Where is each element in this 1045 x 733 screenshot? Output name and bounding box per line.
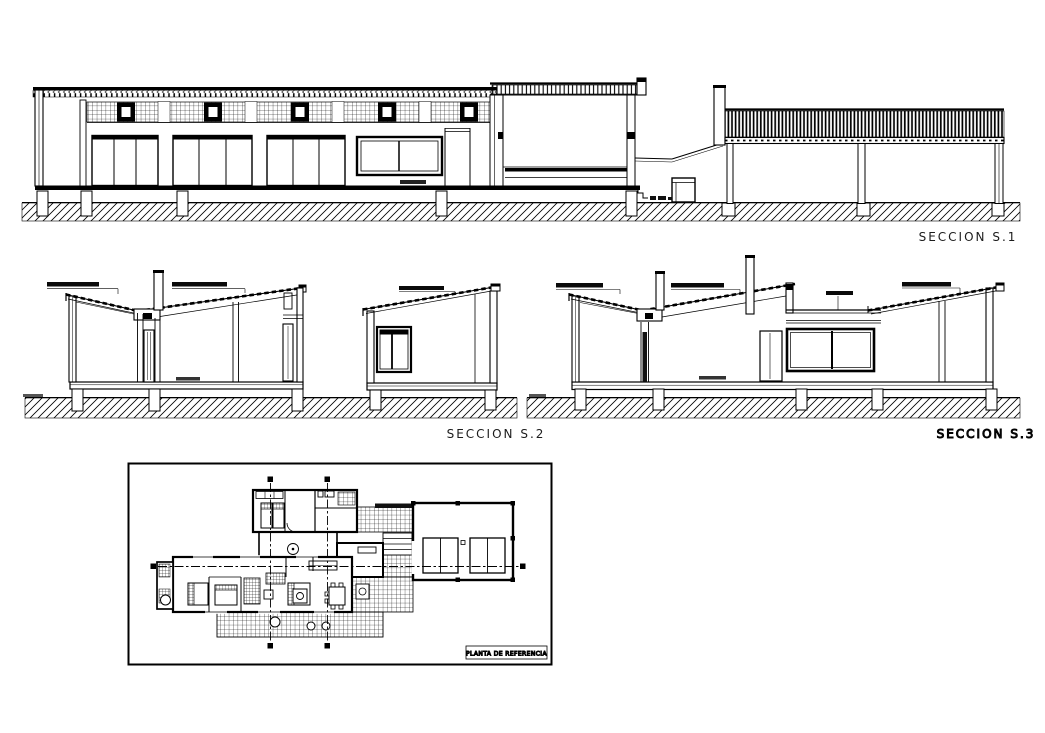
s1-left-wall	[35, 90, 86, 186]
s1-clerestory-band	[87, 102, 490, 123]
s3-ground-annotation-blob	[529, 394, 546, 397]
s2-piece2-window	[377, 327, 411, 372]
plan-steps	[383, 533, 412, 555]
plan-title-box: PLANTA DE REFERENCIA	[466, 646, 547, 659]
seccion-s3-label: SECCION S.3	[937, 427, 1036, 441]
s1-carport	[725, 110, 1004, 204]
s3-ground-hatch	[527, 398, 1020, 419]
seccion-s2-label: SECCION S.2	[447, 427, 546, 441]
s2-piece1	[47, 270, 306, 411]
drawing-canvas: SECCION S.1	[0, 0, 1045, 733]
s1-carport-columns	[727, 144, 1003, 204]
seccion-s1-label: SECCION S.1	[919, 230, 1018, 244]
s1-step-annotation-blobs	[650, 196, 672, 200]
s1-window	[357, 137, 442, 175]
s1-roof-band	[33, 87, 497, 97]
seccion-s3-drawing: SECCION S.3	[527, 255, 1035, 441]
planta-drawing: PLANTA DE REFERENCIA	[129, 464, 552, 665]
s1-glass-doors	[92, 136, 345, 186]
s1-level-annotation-blob	[400, 180, 426, 184]
s2-ground-hatch	[25, 398, 517, 419]
seccion-s2-drawing: SECCION S.2	[23, 270, 545, 441]
plan-beds-upper	[261, 503, 284, 528]
plan-garage	[411, 501, 515, 582]
s2-piece2-annotation-blob	[399, 286, 444, 290]
s2-piece2	[363, 284, 500, 410]
plan-main-block	[157, 555, 352, 614]
seccion-s1-drawing: SECCION S.1	[22, 78, 1020, 244]
s1-chimney	[713, 85, 726, 145]
s3-window	[787, 329, 874, 371]
s1-pilaster	[445, 128, 470, 186]
plan-title: PLANTA DE REFERENCIA	[466, 651, 547, 658]
s2-ground-annotation-blob	[23, 394, 43, 397]
plan-stove	[293, 589, 307, 603]
s3-flat-canopy	[786, 291, 881, 323]
s3-alero-annotation-blob	[826, 291, 853, 295]
plan-upper-block	[253, 490, 357, 532]
plan-bath-annex	[157, 562, 173, 609]
drawing-sheet: SECCION S.1	[0, 0, 1045, 733]
s1-connector	[632, 143, 723, 202]
s1-tall-room	[490, 78, 646, 186]
